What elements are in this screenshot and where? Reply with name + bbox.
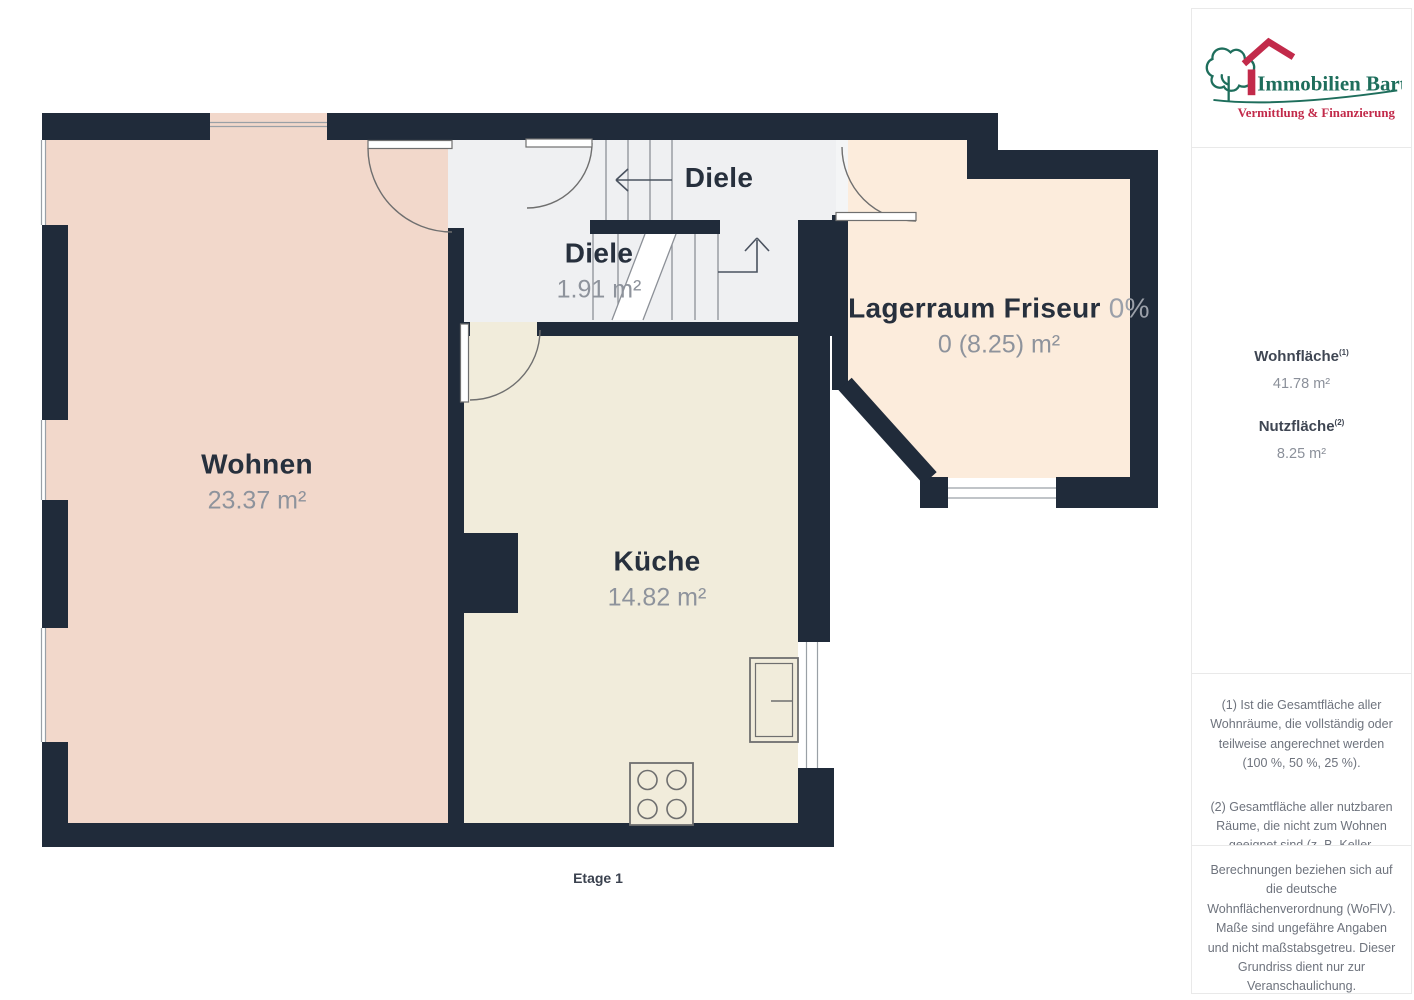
footnote-ref: (1) [1339, 348, 1349, 357]
legal-panel: Berechnungen beziehen sich auf die deuts… [1191, 845, 1412, 994]
room-share: 0% [1109, 293, 1150, 324]
label-wohnen: Wohnen 23.37 m² [201, 449, 313, 516]
metric-label: Nutzfläche(2) [1192, 418, 1411, 435]
floorplan-page: Wohnen 23.37 m² Küche 14.82 m² Diele Die… [0, 0, 1414, 1000]
room-area: 14.82 m² [608, 584, 707, 613]
wall-stair-separator [590, 220, 720, 234]
window-left-3 [46, 628, 68, 742]
room-name: Lagerraum Friseur 0% [848, 293, 1150, 325]
room-name: Diele [557, 238, 642, 270]
wall-kueche-top-left [448, 322, 470, 336]
logo-tagline: Vermittlung & Finanzierung [1237, 106, 1395, 120]
room-name: Wohnen [201, 449, 313, 481]
wall-top-mid [327, 113, 997, 140]
room-area: 23.37 m² [201, 487, 313, 516]
logo-name: Immobilien Bart [1257, 71, 1402, 95]
immobilien-bart-logo: Immobilien Bart Vermittlung & Finanzieru… [1202, 29, 1402, 129]
disclaimer-text: Berechnungen beziehen sich auf die deuts… [1205, 861, 1398, 997]
wall-left-3 [42, 742, 68, 823]
window-lagerraum-bottom [948, 478, 1056, 508]
footnote-1: (1) Ist die Gesamtfläche aller Wohnräume… [1205, 696, 1398, 774]
room-area: 1.91 m² [557, 276, 642, 305]
label-lagerraum: Lagerraum Friseur 0% 0 (8.25) m² [848, 293, 1150, 360]
window-kueche-right [800, 642, 828, 768]
label-kueche: Küche 14.82 m² [608, 546, 707, 613]
metric-nutzflaeche: Nutzfläche(2) 8.25 m² [1192, 418, 1411, 462]
logo-panel: Immobilien Bart Vermittlung & Finanzieru… [1191, 8, 1412, 149]
sidebar: Immobilien Bart Vermittlung & Finanzieru… [1190, 0, 1414, 1000]
metrics-panel: Wohnfläche(1) 41.78 m² Nutzfläche(2) 8.2… [1191, 147, 1412, 675]
metric-label: Wohnfläche(1) [1192, 348, 1411, 365]
wall-left-2 [42, 500, 68, 628]
window-top [210, 113, 327, 140]
wall-mid-right-upper [798, 220, 836, 336]
label-diele-lower: Diele 1.91 m² [557, 238, 642, 305]
floorplan: Wohnen 23.37 m² Küche 14.82 m² Diele Die… [0, 0, 1190, 1000]
wall-left-1 [42, 225, 68, 420]
wall-chimney [464, 533, 518, 613]
doorway-diele-lagerraum [836, 140, 848, 217]
wall-lagerraum-bottom-right [1056, 477, 1158, 508]
footnote-ref: (2) [1335, 418, 1345, 427]
wall-kueche-right-upper [798, 336, 830, 642]
wall-top-left [42, 113, 210, 140]
wall-bottom [42, 823, 834, 847]
doorway-diele-kueche [470, 322, 537, 336]
room-area: 0 (8.25) m² [848, 331, 1150, 360]
room-name: Küche [608, 546, 707, 578]
wall-kueche-top-right [537, 322, 800, 336]
metric-wohnflaeche: Wohnfläche(1) 41.78 m² [1192, 348, 1411, 392]
wall-top-step [967, 113, 998, 179]
floor-label: Etage 1 [518, 870, 678, 886]
metric-value: 8.25 m² [1192, 446, 1411, 462]
window-left-2 [46, 420, 68, 500]
label-diele-upper: Diele [685, 162, 753, 194]
wall-wohnen-kueche [448, 228, 464, 823]
footnotes-panel: (1) Ist die Gesamtfläche aller Wohnräume… [1191, 673, 1412, 847]
window-left-1 [46, 140, 68, 225]
room-name: Diele [685, 162, 753, 194]
metric-value: 41.78 m² [1192, 376, 1411, 392]
